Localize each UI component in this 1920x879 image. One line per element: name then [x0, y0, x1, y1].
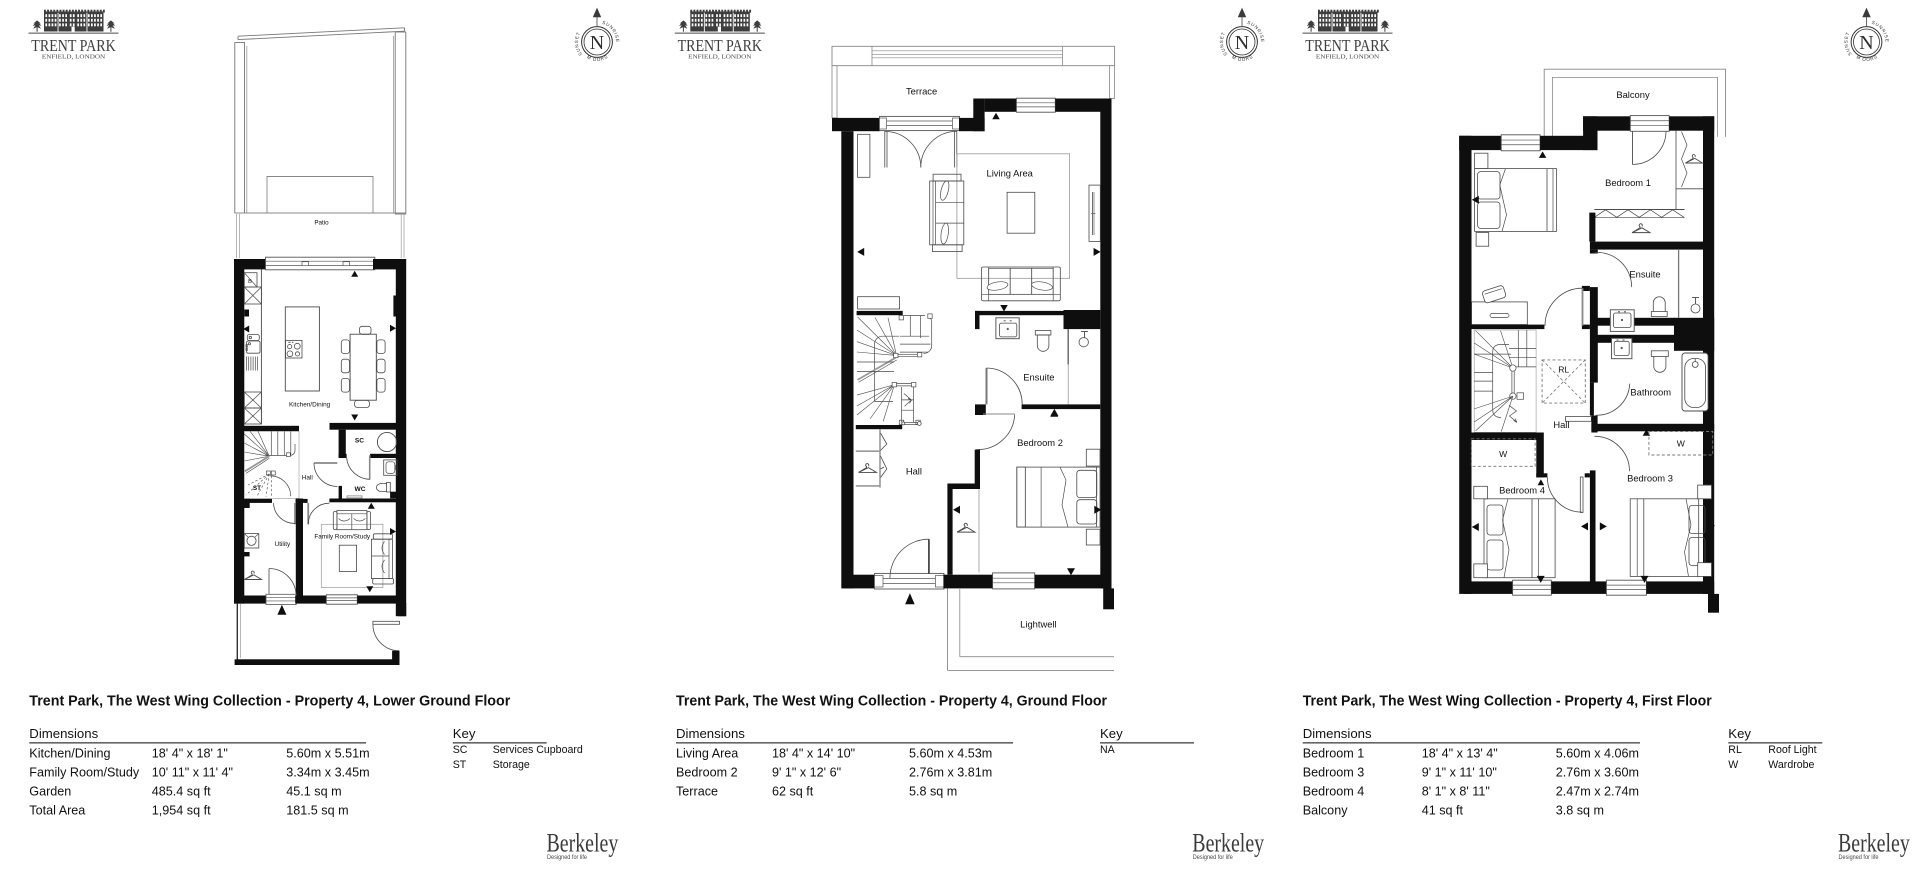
svg-text:W: W [1677, 439, 1686, 449]
svg-text:Key: Key [453, 726, 476, 741]
svg-text:41 sq ft: 41 sq ft [1422, 804, 1464, 818]
svg-text:Bedroom 2: Bedroom 2 [1017, 437, 1063, 448]
svg-text:Bedroom 3: Bedroom 3 [1627, 472, 1673, 483]
svg-text:Kitchen/Dining: Kitchen/Dining [289, 401, 331, 408]
svg-text:NA: NA [1100, 744, 1116, 756]
svg-text:ST: ST [253, 485, 261, 492]
svg-text:18' 4" x 14' 10": 18' 4" x 14' 10" [772, 747, 855, 761]
svg-text:Family Room/Study: Family Room/Study [29, 766, 140, 780]
svg-text:Roof Light: Roof Light [1768, 744, 1816, 756]
svg-text:Bedroom 1: Bedroom 1 [1605, 177, 1651, 188]
svg-text:Storage: Storage [493, 759, 530, 771]
svg-text:9' 1" x 12' 6": 9' 1" x 12' 6" [772, 766, 841, 780]
svg-text:Trent Park, The West Wing Coll: Trent Park, The West Wing Collection - P… [1303, 693, 1712, 710]
svg-text:Bedroom 3: Bedroom 3 [1303, 766, 1365, 780]
svg-text:3.34m x 3.45m: 3.34m x 3.45m [286, 766, 369, 780]
svg-text:B: B [248, 279, 252, 285]
svg-text:18' 4" x 13' 4": 18' 4" x 13' 4" [1422, 747, 1498, 761]
svg-text:WC: WC [355, 486, 366, 493]
svg-text:Hall: Hall [302, 474, 313, 481]
svg-text:Bedroom 4: Bedroom 4 [1303, 785, 1365, 799]
svg-text:SC: SC [355, 437, 364, 444]
svg-text:Patio: Patio [314, 220, 329, 227]
svg-text:Key: Key [1100, 726, 1123, 741]
svg-text:Trent Park, The West Wing Coll: Trent Park, The West Wing Collection - P… [29, 693, 510, 710]
svg-text:Kitchen/Dining: Kitchen/Dining [29, 747, 110, 761]
svg-text:5.60m x 4.06m: 5.60m x 4.06m [1556, 747, 1639, 761]
svg-text:Dimensions: Dimensions [29, 726, 98, 741]
svg-text:Wardrobe: Wardrobe [1768, 759, 1814, 771]
svg-text:10' 11" x 11' 4": 10' 11" x 11' 4" [152, 766, 233, 780]
svg-text:Key: Key [1728, 726, 1751, 741]
svg-text:Hall: Hall [1553, 419, 1569, 430]
svg-text:W: W [1728, 759, 1738, 771]
svg-text:3.8 sq m: 3.8 sq m [1556, 804, 1604, 818]
svg-text:Hall: Hall [906, 465, 922, 476]
svg-text:485.4 sq ft: 485.4 sq ft [152, 785, 211, 799]
svg-text:Dimensions: Dimensions [1303, 726, 1372, 741]
svg-text:2.76m x 3.60m: 2.76m x 3.60m [1556, 766, 1639, 780]
svg-text:Garden: Garden [29, 785, 71, 799]
svg-text:Dimensions: Dimensions [676, 726, 745, 741]
svg-text:Bedroom 2: Bedroom 2 [676, 766, 738, 780]
svg-text:45.1 sq m: 45.1 sq m [286, 785, 341, 799]
svg-text:Ensuite: Ensuite [1629, 269, 1660, 280]
svg-text:9' 1" x 11' 10": 9' 1" x 11' 10" [1422, 766, 1497, 780]
svg-text:Lightwell: Lightwell [1020, 618, 1056, 629]
svg-text:Total Area: Total Area [29, 804, 85, 818]
svg-text:Terrace: Terrace [906, 86, 937, 97]
svg-text:Ensuite: Ensuite [1023, 372, 1054, 383]
svg-text:W: W [1499, 449, 1508, 459]
svg-text:8' 1" x 8' 11": 8' 1" x 8' 11" [1422, 785, 1490, 799]
svg-text:5.8 sq m: 5.8 sq m [909, 785, 957, 799]
svg-text:Balcony: Balcony [1303, 804, 1349, 818]
svg-text:Living Area: Living Area [676, 747, 738, 761]
svg-text:Trent Park, The West Wing Coll: Trent Park, The West Wing Collection - P… [676, 693, 1107, 710]
svg-text:Living Area: Living Area [987, 168, 1034, 179]
svg-text:Utility: Utility [275, 541, 291, 548]
svg-text:Bedroom 1: Bedroom 1 [1303, 747, 1365, 761]
svg-text:1,954 sq ft: 1,954 sq ft [152, 804, 211, 818]
svg-text:Services Cupboard: Services Cupboard [493, 744, 583, 756]
svg-text:181.5 sq m: 181.5 sq m [286, 804, 348, 818]
svg-text:Family Room/Study: Family Room/Study [314, 534, 371, 541]
svg-text:62 sq ft: 62 sq ft [772, 785, 814, 799]
svg-text:Terrace: Terrace [676, 785, 718, 799]
svg-text:5.60m x 4.53m: 5.60m x 4.53m [909, 747, 992, 761]
svg-text:RL: RL [1558, 365, 1569, 375]
svg-text:ST: ST [453, 759, 467, 771]
svg-text:18' 4" x 18' 1": 18' 4" x 18' 1" [152, 747, 228, 761]
svg-text:5.60m x 5.51m: 5.60m x 5.51m [286, 747, 369, 761]
svg-text:SC: SC [453, 744, 468, 756]
svg-text:Bathroom: Bathroom [1630, 387, 1671, 398]
svg-text:RL: RL [1728, 744, 1742, 756]
svg-text:Balcony: Balcony [1616, 89, 1650, 100]
svg-text:Bedroom 4: Bedroom 4 [1499, 484, 1545, 495]
svg-text:2.47m x 2.74m: 2.47m x 2.74m [1556, 785, 1639, 799]
svg-text:2.76m x 3.81m: 2.76m x 3.81m [909, 766, 992, 780]
